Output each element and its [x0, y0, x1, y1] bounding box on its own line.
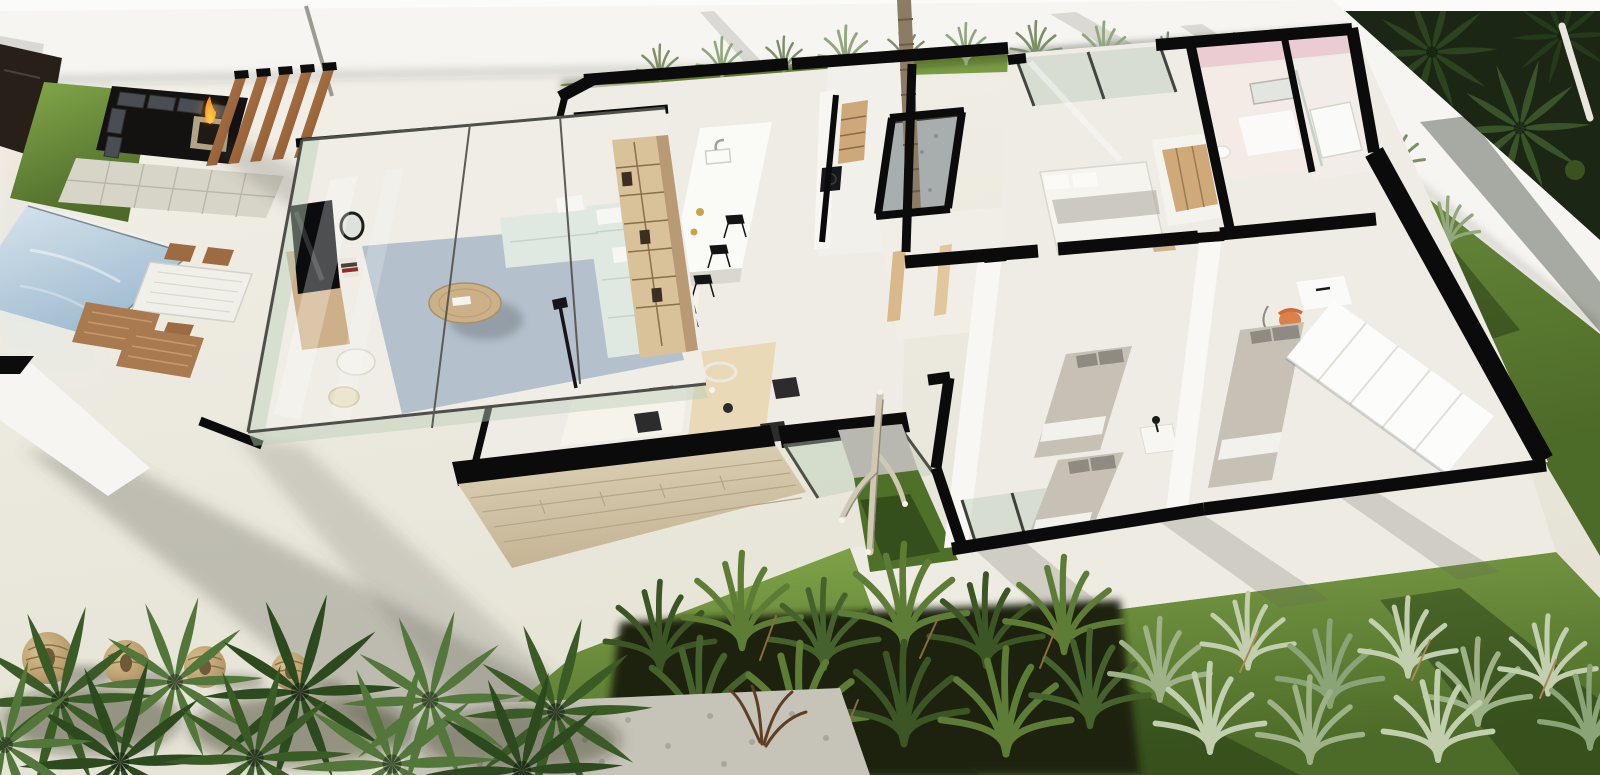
- vase: [723, 403, 733, 413]
- wall-kitchen-right: [906, 64, 912, 252]
- wall-cap-divider: [1196, 236, 1224, 238]
- scene-root: [0, 0, 1600, 775]
- dining-chair: [634, 411, 662, 433]
- wall-bedroom-back-a: [1008, 58, 1026, 60]
- table-lamp: [1152, 416, 1160, 424]
- vanity: [1238, 110, 1302, 156]
- desk: [1296, 276, 1352, 310]
- dining-chair: [772, 377, 800, 399]
- villa-render: [0, 0, 1600, 775]
- wall-cap-kidsroom: [984, 256, 1006, 258]
- living-room: [246, 108, 708, 446]
